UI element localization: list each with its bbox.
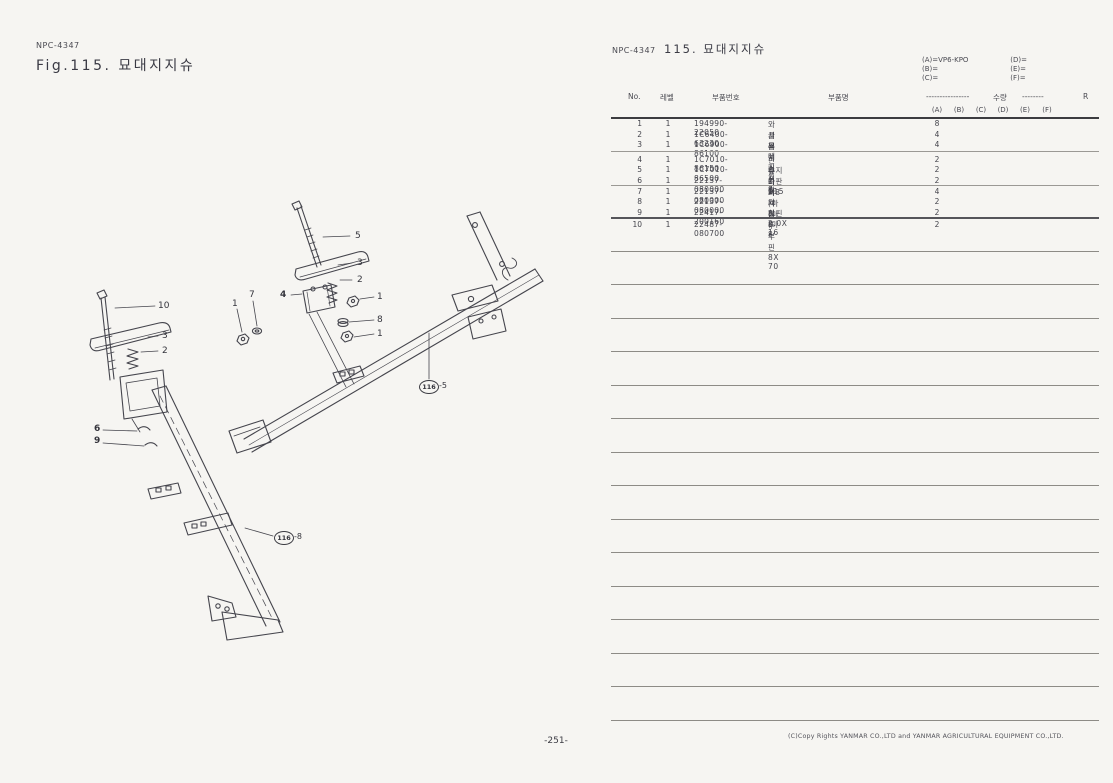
model-code-f: (F)= bbox=[1010, 74, 1027, 83]
row-level: 1 bbox=[654, 155, 682, 164]
diagram-callout-3: 3 bbox=[357, 258, 363, 268]
ruled-line bbox=[611, 519, 1099, 520]
diagram-callout-3: 3 bbox=[162, 331, 168, 341]
row-level: 1 bbox=[654, 187, 682, 196]
row-qty-a: 4 bbox=[926, 187, 948, 196]
diagram-callout-10: 10 bbox=[158, 301, 169, 311]
row-qty-a: 2 bbox=[926, 165, 948, 174]
row-part-number: 22487-080700 bbox=[694, 220, 724, 238]
ruled-line bbox=[611, 720, 1099, 721]
row-no: 1 bbox=[612, 119, 642, 128]
ref-suffix: -5 bbox=[439, 381, 447, 390]
row-level: 1 bbox=[654, 130, 682, 139]
row-part-name: 두부핀 8X 70 bbox=[768, 220, 779, 271]
row-qty-a: 2 bbox=[926, 197, 948, 206]
qty-col-d: (D) bbox=[992, 106, 1014, 114]
col-header-qty-dashes-left: ---------------- bbox=[926, 92, 969, 101]
col-header-qty-dashes-right: -------- bbox=[1022, 92, 1044, 101]
row-no: 3 bbox=[612, 140, 642, 149]
row-qty-a: 4 bbox=[926, 140, 948, 149]
col-header-part-name: 부품명 bbox=[828, 92, 849, 103]
row-no: 6 bbox=[612, 176, 642, 185]
qty-col-b: (B) bbox=[948, 106, 970, 114]
diagram-callout-1: 1 bbox=[377, 292, 383, 302]
row-no: 7 bbox=[612, 187, 642, 196]
ruled-line bbox=[611, 284, 1099, 285]
row-no: 8 bbox=[612, 197, 642, 206]
row-qty-a: 4 bbox=[926, 130, 948, 139]
diagram-callout-5: 5 bbox=[355, 231, 361, 241]
ruled-line bbox=[611, 418, 1099, 419]
ruled-line bbox=[611, 485, 1099, 486]
group-separator bbox=[611, 185, 1099, 186]
ruled-line bbox=[611, 385, 1099, 386]
circled-fig-number: 116 bbox=[274, 531, 294, 545]
diagram-callout-2: 2 bbox=[162, 346, 168, 356]
diagram-ref-116-8: 116-8 bbox=[274, 531, 302, 545]
row-no: 9 bbox=[612, 208, 642, 217]
parts-catalog-page: NPC-4347 Fig.115. 묘대지지슈 NPC-4347 115. 묘대… bbox=[0, 0, 1113, 783]
qty-col-c: (C) bbox=[970, 106, 992, 114]
qty-col-a: (A) bbox=[926, 106, 948, 114]
col-header-r: R bbox=[1083, 92, 1088, 101]
ruled-line bbox=[611, 619, 1099, 620]
model-code-legend: (A)=VP6-KPO (B)= (C)= (D)= (E)= (F)= bbox=[922, 56, 1027, 83]
ruled-line bbox=[611, 653, 1099, 654]
row-level: 1 bbox=[654, 220, 682, 229]
diagram-callout-7: 7 bbox=[249, 290, 255, 300]
row-no: 10 bbox=[612, 220, 642, 229]
row-no: 2 bbox=[612, 130, 642, 139]
diagram-ref-116-5: 116-5 bbox=[419, 380, 447, 394]
ruled-line bbox=[611, 586, 1099, 587]
diagram-callout-1: 1 bbox=[232, 299, 238, 309]
diagram-callout-2: 2 bbox=[357, 275, 363, 285]
model-code-e: (E)= bbox=[1010, 65, 1027, 74]
diagram-callout-1: 1 bbox=[377, 329, 383, 339]
row-qty-a: 2 bbox=[926, 155, 948, 164]
model-code-d: (D)= bbox=[1010, 56, 1027, 65]
copyright-notice: (C)Copy Rights YANMAR CO.,LTD and YANMAR… bbox=[788, 733, 1064, 740]
row-no: 5 bbox=[612, 165, 642, 174]
ruled-line bbox=[611, 251, 1099, 252]
ruled-line bbox=[611, 318, 1099, 319]
page-number: -251- bbox=[516, 736, 596, 746]
ruled-line bbox=[611, 686, 1099, 687]
model-code-b: (B)= bbox=[922, 65, 1008, 74]
doc-code-right: NPC-4347 bbox=[612, 46, 656, 55]
col-header-level: 레벨 bbox=[660, 92, 674, 103]
ruled-line bbox=[611, 452, 1099, 453]
col-header-qty: 수량 bbox=[993, 92, 1007, 103]
section-title: 115. 묘대지지슈 bbox=[664, 41, 766, 57]
group-separator bbox=[611, 151, 1099, 152]
row-level: 1 bbox=[654, 176, 682, 185]
diagram-callout-8: 8 bbox=[377, 315, 383, 325]
ruled-line bbox=[611, 351, 1099, 352]
doc-code-left: NPC-4347 bbox=[36, 41, 80, 50]
row-level: 1 bbox=[654, 140, 682, 149]
ref-suffix: -8 bbox=[294, 532, 302, 541]
circled-fig-number: 116 bbox=[419, 380, 439, 394]
table-top-rule bbox=[611, 117, 1099, 119]
diagram-callout-9: 9 bbox=[94, 436, 100, 446]
col-header-no: No. bbox=[628, 92, 640, 101]
figure-title: Fig.115. 묘대지지슈 bbox=[36, 55, 195, 75]
row-level: 1 bbox=[654, 197, 682, 206]
row-qty-a: 2 bbox=[926, 176, 948, 185]
qty-col-f: (F) bbox=[1036, 106, 1058, 114]
diagram-callout-4: 4 bbox=[280, 290, 286, 300]
row-qty-a: 2 bbox=[926, 208, 948, 217]
ruled-line bbox=[611, 552, 1099, 553]
diagram-callout-6: 6 bbox=[94, 424, 100, 434]
group-separator-dark bbox=[611, 217, 1099, 219]
row-level: 1 bbox=[654, 119, 682, 128]
row-level: 1 bbox=[654, 165, 682, 174]
row-qty-a: 2 bbox=[926, 220, 948, 229]
row-level: 1 bbox=[654, 208, 682, 217]
model-code-a: (A)=VP6-KPO bbox=[922, 56, 1008, 65]
qty-col-e: (E) bbox=[1014, 106, 1036, 114]
model-code-c: (C)= bbox=[922, 74, 1008, 83]
row-qty-a: 8 bbox=[926, 119, 948, 128]
row-no: 4 bbox=[612, 155, 642, 164]
col-header-part-number: 부품번호 bbox=[712, 92, 740, 103]
